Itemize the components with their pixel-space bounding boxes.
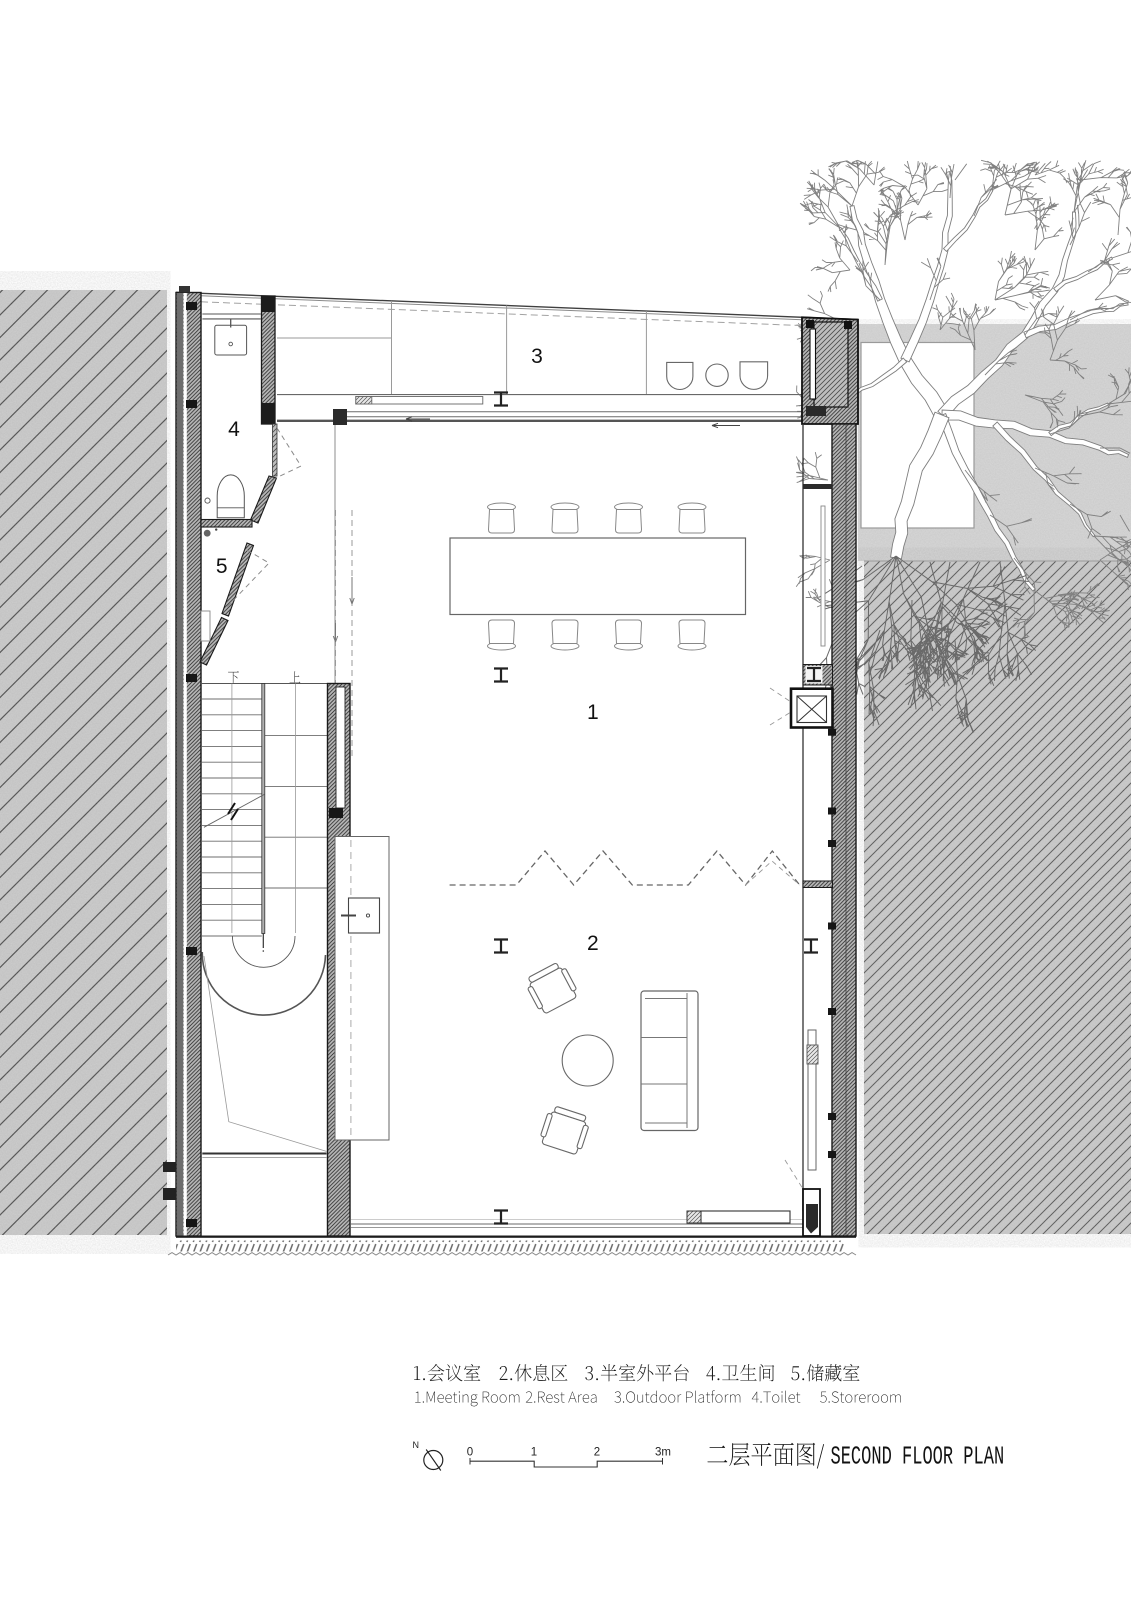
svg-text:2: 2 bbox=[587, 932, 599, 955]
svg-text:1: 1 bbox=[587, 701, 599, 724]
svg-text:2: 2 bbox=[594, 1447, 600, 1459]
svg-text:3: 3 bbox=[531, 345, 543, 368]
svg-text:5: 5 bbox=[216, 555, 228, 578]
svg-text:1: 1 bbox=[531, 1447, 537, 1459]
svg-text:SECOND FLOOR PLAN: SECOND FLOOR PLAN bbox=[831, 1442, 1005, 1472]
svg-text:0: 0 bbox=[467, 1447, 473, 1459]
svg-text:N: N bbox=[413, 1440, 420, 1450]
svg-text:3m: 3m bbox=[655, 1447, 671, 1459]
svg-text:4: 4 bbox=[228, 418, 240, 441]
